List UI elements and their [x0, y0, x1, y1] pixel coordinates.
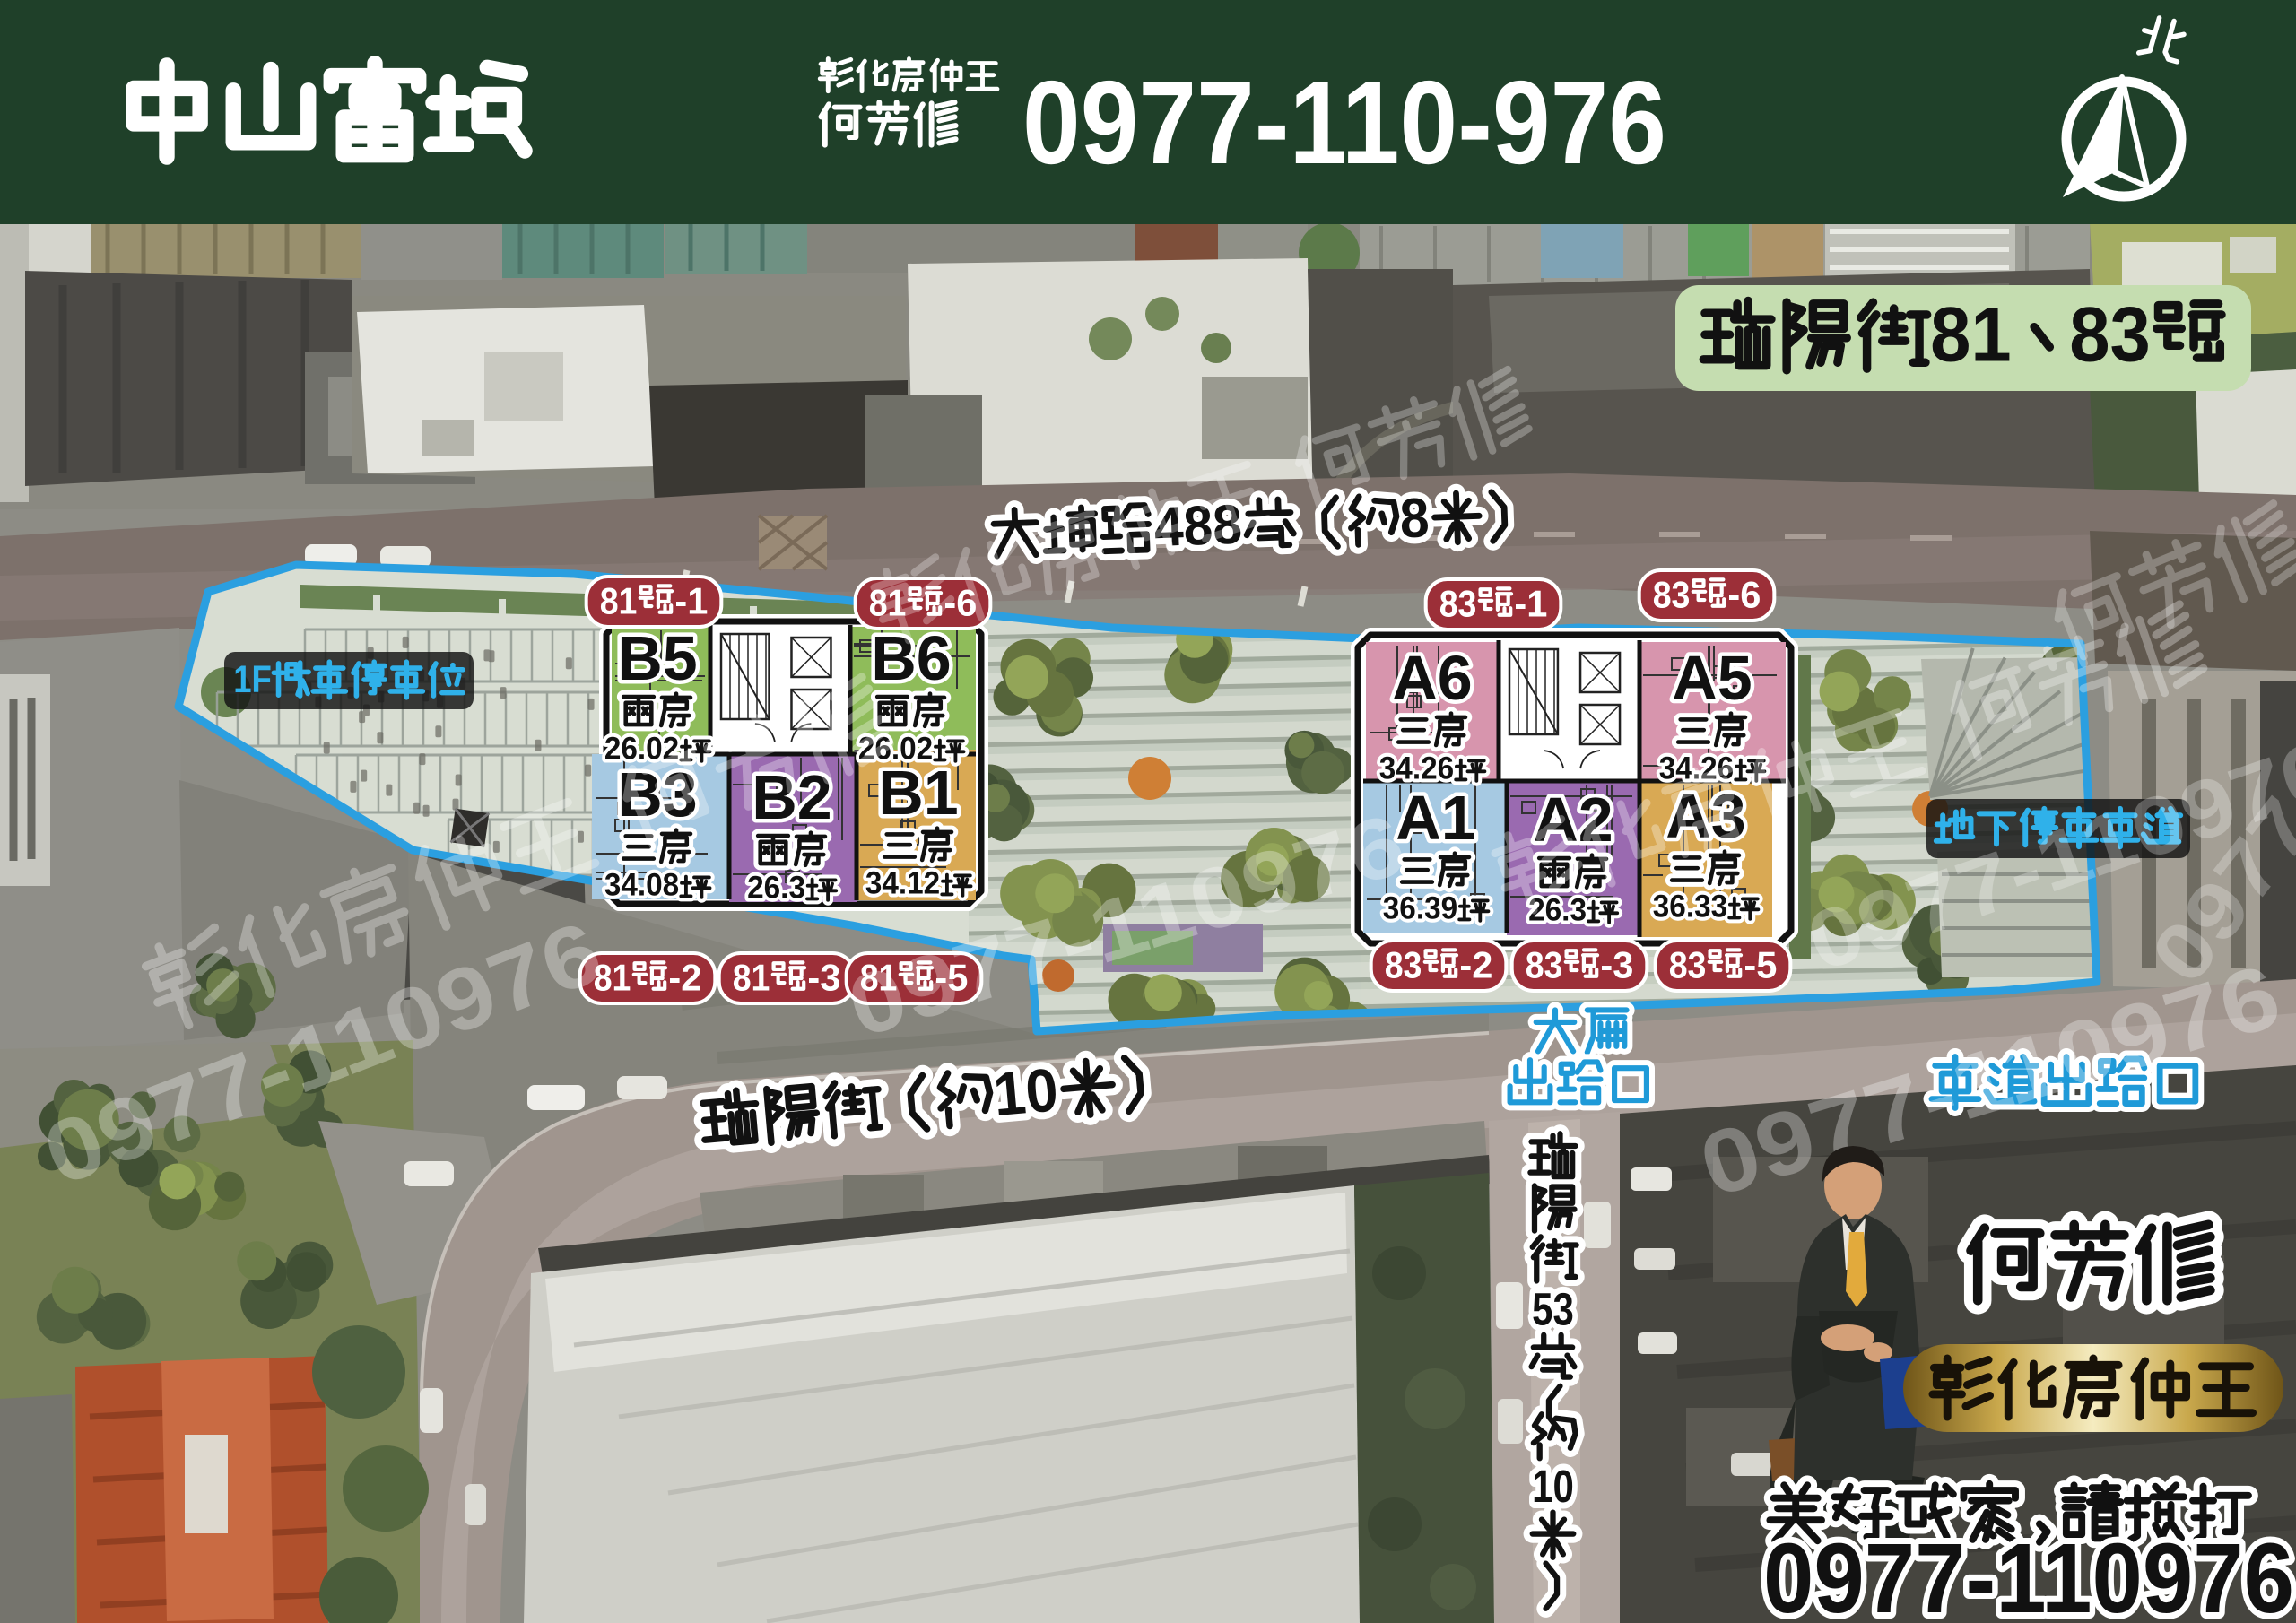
svg-text:-5: -5 — [1744, 943, 1777, 985]
svg-text:81: 81 — [733, 956, 770, 998]
svg-text:-6: -6 — [1727, 573, 1761, 615]
svg-text:-3: -3 — [807, 956, 840, 998]
svg-text:1F: 1F — [233, 658, 272, 701]
svg-text:83: 83 — [2069, 292, 2151, 378]
svg-text:-2: -2 — [1459, 943, 1492, 985]
svg-text:81: 81 — [600, 579, 638, 621]
svg-text:26.3: 26.3 — [747, 871, 805, 906]
svg-text:36.39: 36.39 — [1383, 891, 1457, 926]
svg-text:A5: A5 — [1672, 643, 1752, 713]
svg-text:36.33: 36.33 — [1653, 890, 1727, 924]
svg-text:34.26: 34.26 — [1379, 751, 1454, 786]
svg-text:0977-110976: 0977-110976 — [1763, 1523, 2294, 1623]
svg-text:34.12: 34.12 — [865, 866, 940, 901]
svg-text:-1: -1 — [1514, 582, 1547, 624]
svg-text:34.08: 34.08 — [604, 868, 679, 903]
svg-text:8: 8 — [1399, 487, 1431, 550]
svg-text:0977-110-976: 0977-110-976 — [1022, 56, 1666, 188]
svg-text:83: 83 — [1439, 582, 1477, 624]
svg-text:81: 81 — [1930, 292, 2012, 378]
svg-text:-2: -2 — [668, 956, 701, 998]
svg-text:83: 83 — [1526, 943, 1563, 985]
svg-text:B5: B5 — [617, 623, 697, 693]
svg-text:-1: -1 — [674, 579, 708, 621]
svg-text:-3: -3 — [1600, 943, 1633, 985]
svg-text:83: 83 — [1653, 573, 1691, 615]
svg-text:A6: A6 — [1392, 643, 1472, 713]
svg-text:B6: B6 — [871, 623, 951, 693]
svg-text:10: 10 — [991, 1055, 1061, 1129]
svg-text:83: 83 — [1385, 943, 1422, 985]
svg-text:B1: B1 — [878, 758, 958, 828]
svg-text:53: 53 — [1532, 1284, 1574, 1335]
svg-text:10: 10 — [1532, 1461, 1574, 1512]
svg-text:A1: A1 — [1396, 783, 1475, 853]
svg-text:83: 83 — [1669, 943, 1707, 985]
